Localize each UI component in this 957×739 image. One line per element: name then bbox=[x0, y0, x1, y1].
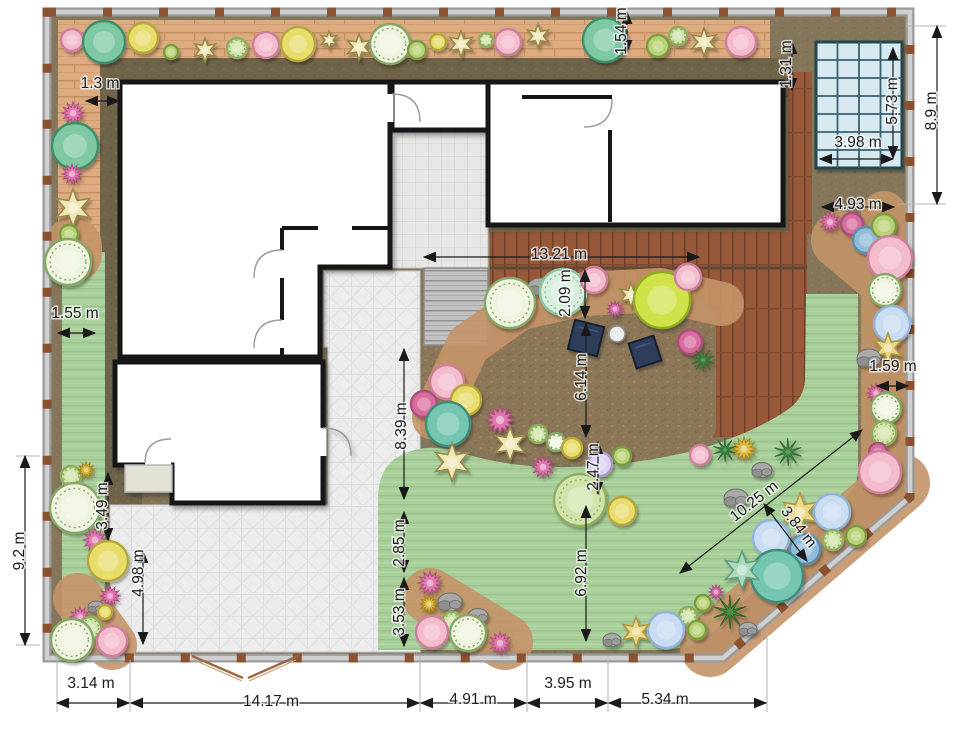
plant-pink[interactable] bbox=[859, 451, 901, 493]
dimension-label: 5.34 m bbox=[641, 691, 688, 708]
plant-sage2[interactable] bbox=[872, 421, 896, 445]
dimension-label: 5.73 m bbox=[884, 77, 901, 124]
wood-deck-strip[interactable] bbox=[788, 72, 812, 234]
dimension-label: 3.53 m bbox=[391, 588, 408, 635]
plant-sage[interactable] bbox=[872, 214, 896, 238]
plant-dotted[interactable] bbox=[50, 483, 100, 533]
dimension-label: 6.14 m bbox=[573, 353, 590, 400]
plant-dotted[interactable] bbox=[869, 274, 901, 306]
dimension-label: 1.3 m bbox=[81, 75, 120, 92]
plant-gold[interactable] bbox=[281, 27, 315, 61]
plant-pink[interactable] bbox=[726, 27, 756, 57]
plant-rock[interactable] bbox=[438, 593, 462, 611]
plant-gold[interactable] bbox=[562, 438, 582, 458]
plant-blue[interactable] bbox=[814, 494, 850, 530]
plant-sage[interactable] bbox=[613, 447, 631, 465]
dimension-label: 1.59 m bbox=[869, 358, 916, 375]
plant-pink[interactable] bbox=[675, 264, 701, 290]
plant-magenta2[interactable] bbox=[678, 330, 702, 354]
side-table[interactable] bbox=[609, 326, 625, 342]
plant-gold[interactable] bbox=[608, 497, 636, 525]
plant-sage[interactable] bbox=[846, 526, 866, 546]
plant-sage2[interactable] bbox=[227, 38, 247, 58]
plant-dotted[interactable] bbox=[370, 24, 410, 64]
plant-dotted[interactable] bbox=[871, 393, 901, 423]
plant-sage[interactable] bbox=[408, 41, 426, 59]
plant-rock[interactable] bbox=[752, 463, 772, 478]
dimension-label: 4.93 m bbox=[834, 196, 881, 213]
dimension-label: 3.49 m bbox=[94, 482, 111, 529]
dimension-label: 8.9 m bbox=[923, 92, 940, 131]
dimension-label: 8.39 m bbox=[393, 402, 410, 449]
plant-teal2[interactable] bbox=[426, 402, 470, 446]
plant-pink[interactable] bbox=[253, 32, 279, 58]
plant-sage2[interactable] bbox=[823, 530, 843, 550]
dimension-label: 13.21 m bbox=[531, 246, 587, 263]
plant-pink[interactable] bbox=[690, 445, 710, 465]
dimension-label: 3.98 m bbox=[834, 134, 881, 151]
plant-sage2[interactable] bbox=[479, 33, 493, 47]
plant-gold[interactable] bbox=[88, 541, 128, 581]
plant-teal[interactable] bbox=[83, 21, 125, 63]
plant-blue[interactable] bbox=[874, 306, 910, 342]
plant-dotted[interactable] bbox=[45, 239, 91, 285]
plant-pink[interactable] bbox=[868, 236, 912, 280]
plant-gold[interactable] bbox=[128, 23, 158, 53]
dimension-label: 3.95 m bbox=[544, 675, 591, 692]
plant-sage[interactable] bbox=[164, 45, 178, 59]
dimension-label: 6.92 m bbox=[573, 549, 590, 596]
plant-gold[interactable] bbox=[430, 34, 446, 50]
plant-sage[interactable] bbox=[695, 595, 711, 611]
plant-dotted[interactable] bbox=[450, 615, 486, 651]
dimension-label: 1.54 m bbox=[613, 7, 630, 54]
plant-dotted[interactable] bbox=[51, 619, 93, 661]
plant-pink[interactable] bbox=[495, 29, 521, 55]
plant-dotted[interactable] bbox=[485, 278, 535, 328]
plant-pink[interactable] bbox=[97, 626, 127, 656]
plant-sage[interactable] bbox=[688, 621, 706, 639]
garden-plan-canvas[interactable]: 1.3 m1.54 m1.31 m5.73 m3.98 m8.9 m4.93 m… bbox=[0, 0, 957, 739]
plant-sage[interactable] bbox=[647, 35, 669, 57]
dimension-label: 9.2 m bbox=[11, 532, 28, 571]
hallway[interactable] bbox=[392, 82, 488, 130]
plant-pink[interactable] bbox=[61, 29, 83, 51]
plant-rock[interactable] bbox=[739, 622, 757, 636]
plant-blue[interactable] bbox=[648, 612, 684, 648]
tiled-corridor[interactable] bbox=[392, 133, 488, 268]
room-top-right[interactable] bbox=[488, 82, 783, 225]
plant-gold[interactable] bbox=[98, 605, 112, 619]
dimension-label: 4.91 m bbox=[449, 691, 496, 708]
plant-teal2[interactable] bbox=[751, 550, 803, 602]
dimension-label: 14.17 m bbox=[243, 693, 299, 710]
plant-pink[interactable] bbox=[416, 616, 448, 648]
dimension-label: 2.09 m bbox=[557, 269, 574, 316]
plant-teal[interactable] bbox=[52, 123, 98, 169]
dimension-label: 1.31 m bbox=[778, 40, 795, 87]
porch-tiles[interactable] bbox=[125, 465, 172, 492]
dimension-label: 3.14 m bbox=[67, 675, 114, 692]
plant-sage2[interactable] bbox=[529, 425, 547, 443]
dimension-label: 4.98 m bbox=[130, 549, 147, 596]
plant-sage2[interactable] bbox=[669, 27, 687, 45]
dimension-label: 2.85 m bbox=[391, 519, 408, 566]
dimension-label: 1.55 m bbox=[51, 305, 98, 322]
dimension-label: 2.47 m bbox=[585, 443, 602, 490]
plant-rock[interactable] bbox=[603, 633, 621, 647]
plan-stage: 1.3 m1.54 m1.31 m5.73 m3.98 m8.9 m4.93 m… bbox=[0, 0, 957, 739]
